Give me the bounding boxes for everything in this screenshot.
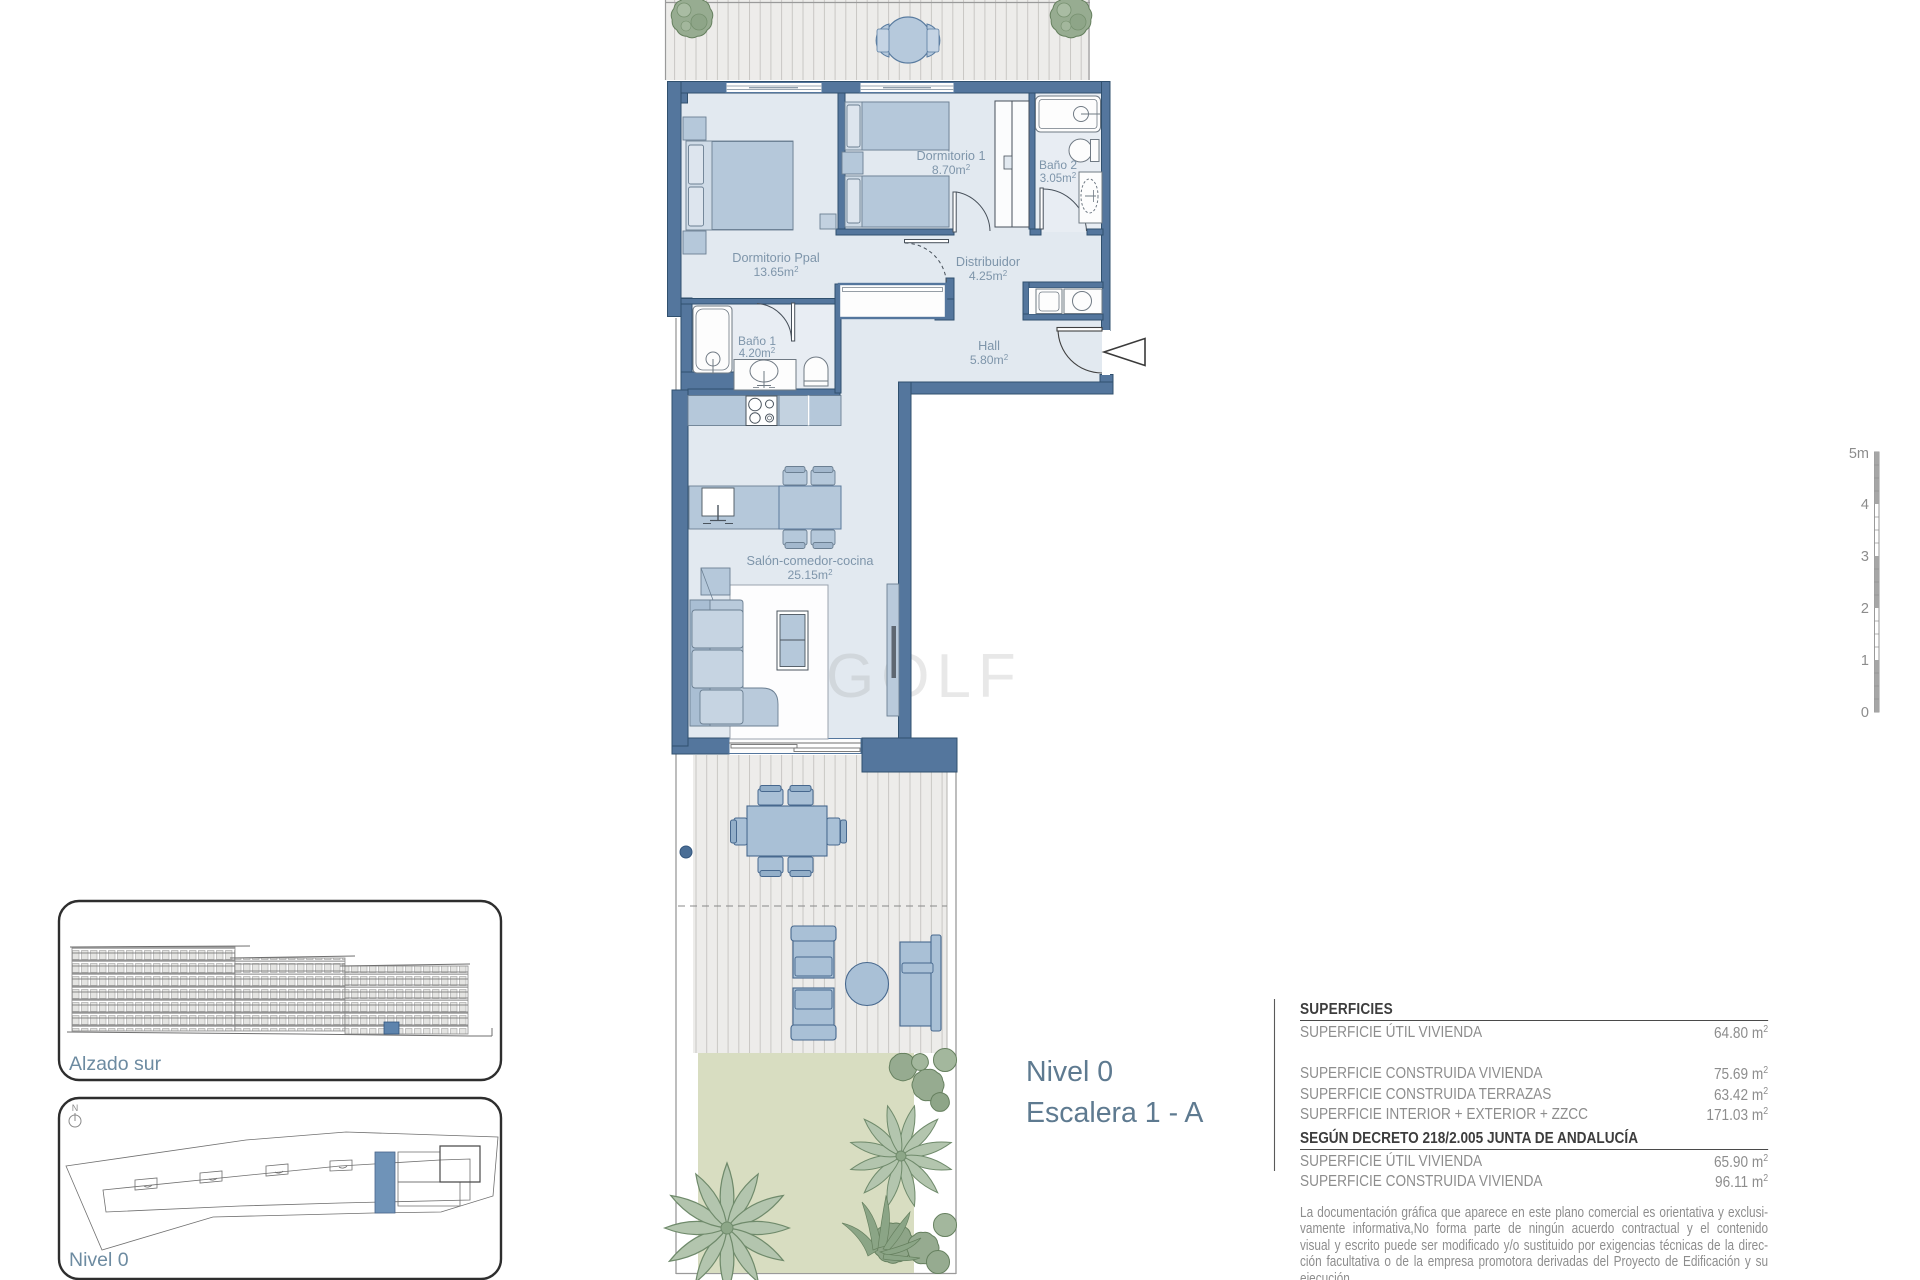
svg-text:Nivel 0: Nivel 0 — [1026, 1056, 1113, 1088]
svg-text:Alzado sur: Alzado sur — [69, 1053, 162, 1075]
svg-text:Nivel 0: Nivel 0 — [69, 1249, 129, 1271]
svg-text:Escalera 1 - A: Escalera 1 - A — [1026, 1097, 1203, 1129]
svg-text:N: N — [72, 1103, 79, 1113]
